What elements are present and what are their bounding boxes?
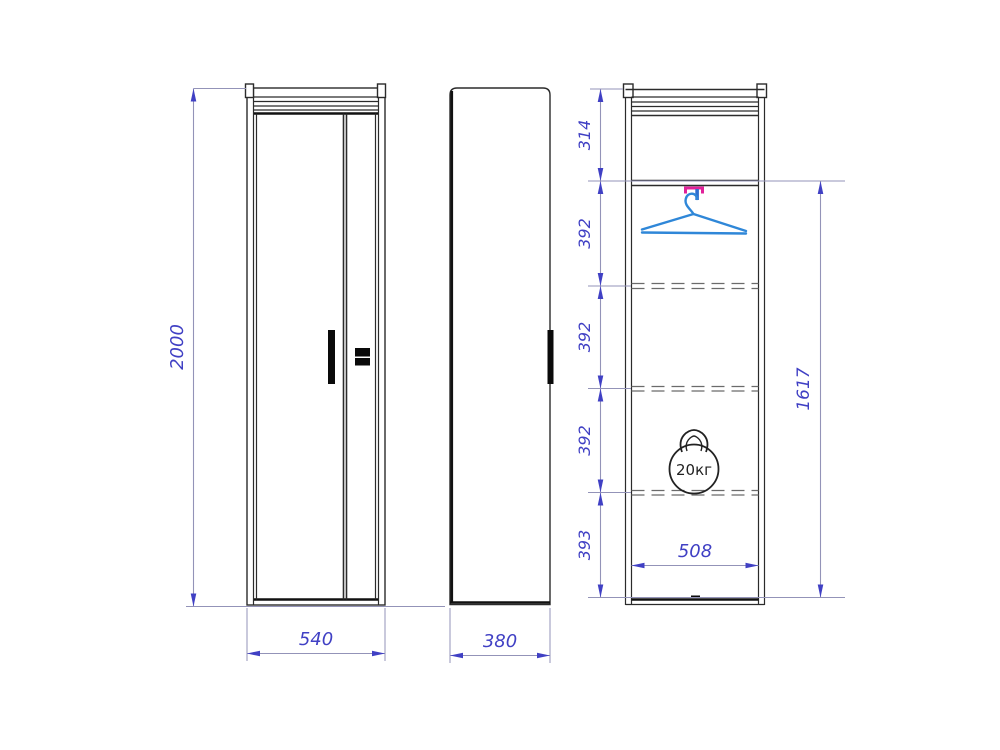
section-cornice — [632, 97, 759, 116]
section-left-top-cap — [624, 84, 634, 98]
interior-width-dim-label: 508 — [678, 541, 712, 562]
front-carcass — [247, 88, 385, 605]
side-depth-dim-label: 380 — [483, 631, 517, 652]
section-seg4-dim-label: 392 — [575, 425, 594, 456]
door-handle — [328, 330, 335, 384]
kettlebell-weight-label: 20кг — [676, 461, 712, 479]
section-right-top-cap — [757, 84, 767, 98]
wardrobe-drawing: 20кг 2000 540 380 — [0, 0, 1000, 750]
front-width-dim-label: 540 — [299, 629, 333, 650]
section-seg5-dim-label: 393 — [575, 530, 594, 561]
side-handle — [548, 330, 554, 384]
front-view — [246, 84, 386, 605]
clothes-hanger-icon — [642, 194, 746, 234]
front-height-dim-label: 2000 — [167, 324, 188, 370]
adjustable-shelf-dashed-1 — [632, 284, 759, 289]
technical-drawing-canvas: 20кг 2000 540 380 — [0, 0, 1000, 750]
side-body — [450, 88, 550, 605]
side-view — [450, 88, 554, 605]
section-seg1-dim-label: 314 — [575, 120, 594, 151]
dimension-side-depth: 380 — [450, 608, 550, 663]
kettlebell-icon: 20кг — [670, 430, 719, 494]
interior-height-dim-label: 1617 — [794, 367, 814, 410]
section-seg2-dim-label: 392 — [575, 218, 594, 249]
adjustable-shelf-dashed-2 — [632, 387, 759, 392]
front-left-top-cap — [246, 84, 254, 98]
section-seg3-dim-label: 392 — [575, 322, 594, 353]
dimension-section-chain: 314 392 392 392 393 — [575, 89, 845, 598]
dimension-front-width: 540 — [247, 608, 385, 661]
dimension-interior-height: 1617 — [794, 181, 823, 598]
front-right-top-cap — [378, 84, 386, 98]
section-view: 20кг — [624, 84, 767, 605]
dimension-interior-width: 508 — [632, 541, 759, 568]
